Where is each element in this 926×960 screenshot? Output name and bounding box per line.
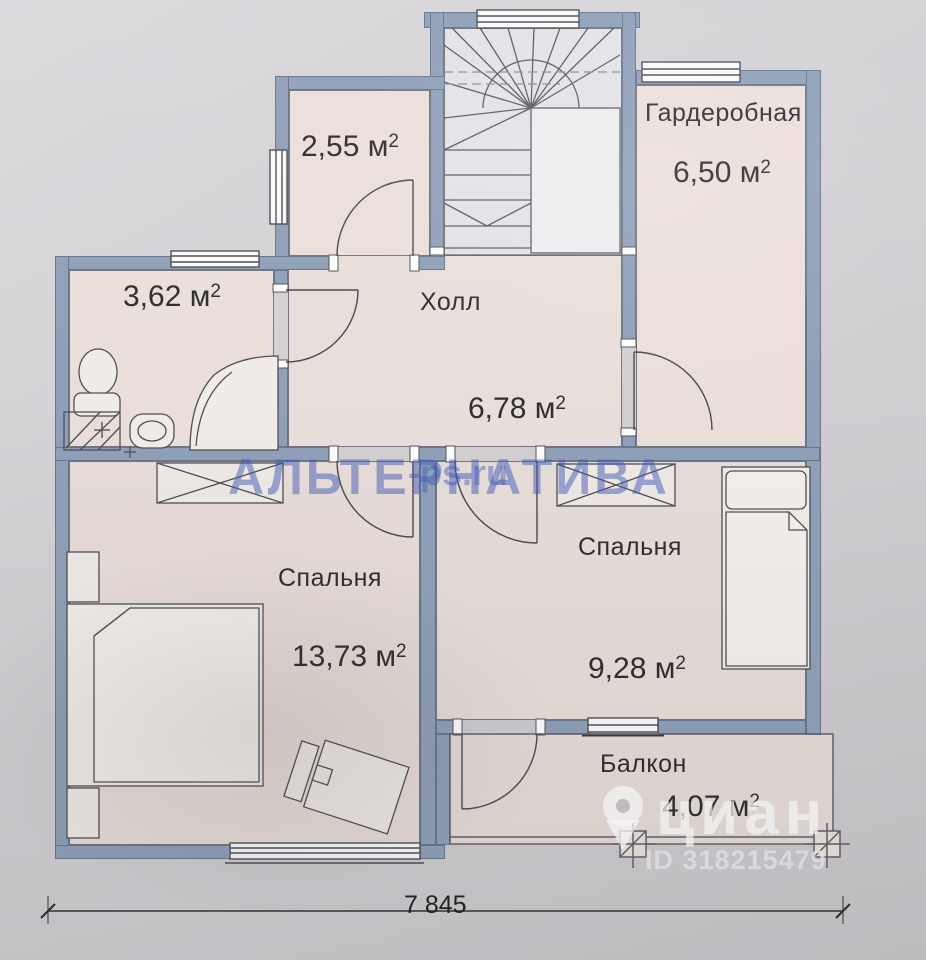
window-wardrobe [642,62,740,82]
balcony-name-label: Балкон [600,750,687,779]
nightstand-icon [67,788,99,838]
cian-watermark: циан [656,778,828,849]
door-closet [337,180,413,256]
window-bathroom [171,251,259,267]
window-balcony [582,718,664,735]
hall-area-label: 6,78 м2 [468,392,566,426]
toilet-icon [74,349,120,416]
bedroom-left-area-label: 13,73 м2 [292,640,407,674]
shower-tray-icon [64,412,136,458]
corner-bath-icon [190,356,278,450]
bathroom-fixtures [64,349,278,458]
desk-icon [283,733,409,834]
door-bathroom [286,290,358,362]
closet-area-label: 2,55 м2 [301,130,399,164]
window-closet [270,150,287,224]
hall-name-label: Холл [420,288,481,317]
window-bedroom-left [225,843,424,863]
site-watermark: -ps.ru [408,452,508,494]
bedroom-left-name-label: Спальня [278,564,382,593]
bedroom-right-name-label: Спальня [578,533,682,562]
bottom-dimension-label: 7 845 [404,891,467,920]
listing-id-watermark: ID 318215479 [645,845,827,876]
bathroom-area-label: 3,62 м2 [123,280,221,314]
wardrobe-area-label: 6,50 м2 [673,156,771,190]
floor-plan: Гардеробная 6,50 м2 2,55 м2 3,62 м2 Холл… [0,0,926,960]
window-stairwell [477,10,579,28]
stairs [444,28,622,255]
bedroom-right-area-label: 9,28 м2 [588,652,686,686]
door-wardrobe [634,352,712,430]
sink-icon [130,414,174,448]
door-balcony [462,734,537,809]
wardrobe-name-label: Гардеробная [645,99,802,128]
single-bed-icon [722,467,810,669]
double-bed-icon [67,604,263,786]
cian-pin-icon [596,782,650,861]
nightstand-icon [67,552,99,602]
